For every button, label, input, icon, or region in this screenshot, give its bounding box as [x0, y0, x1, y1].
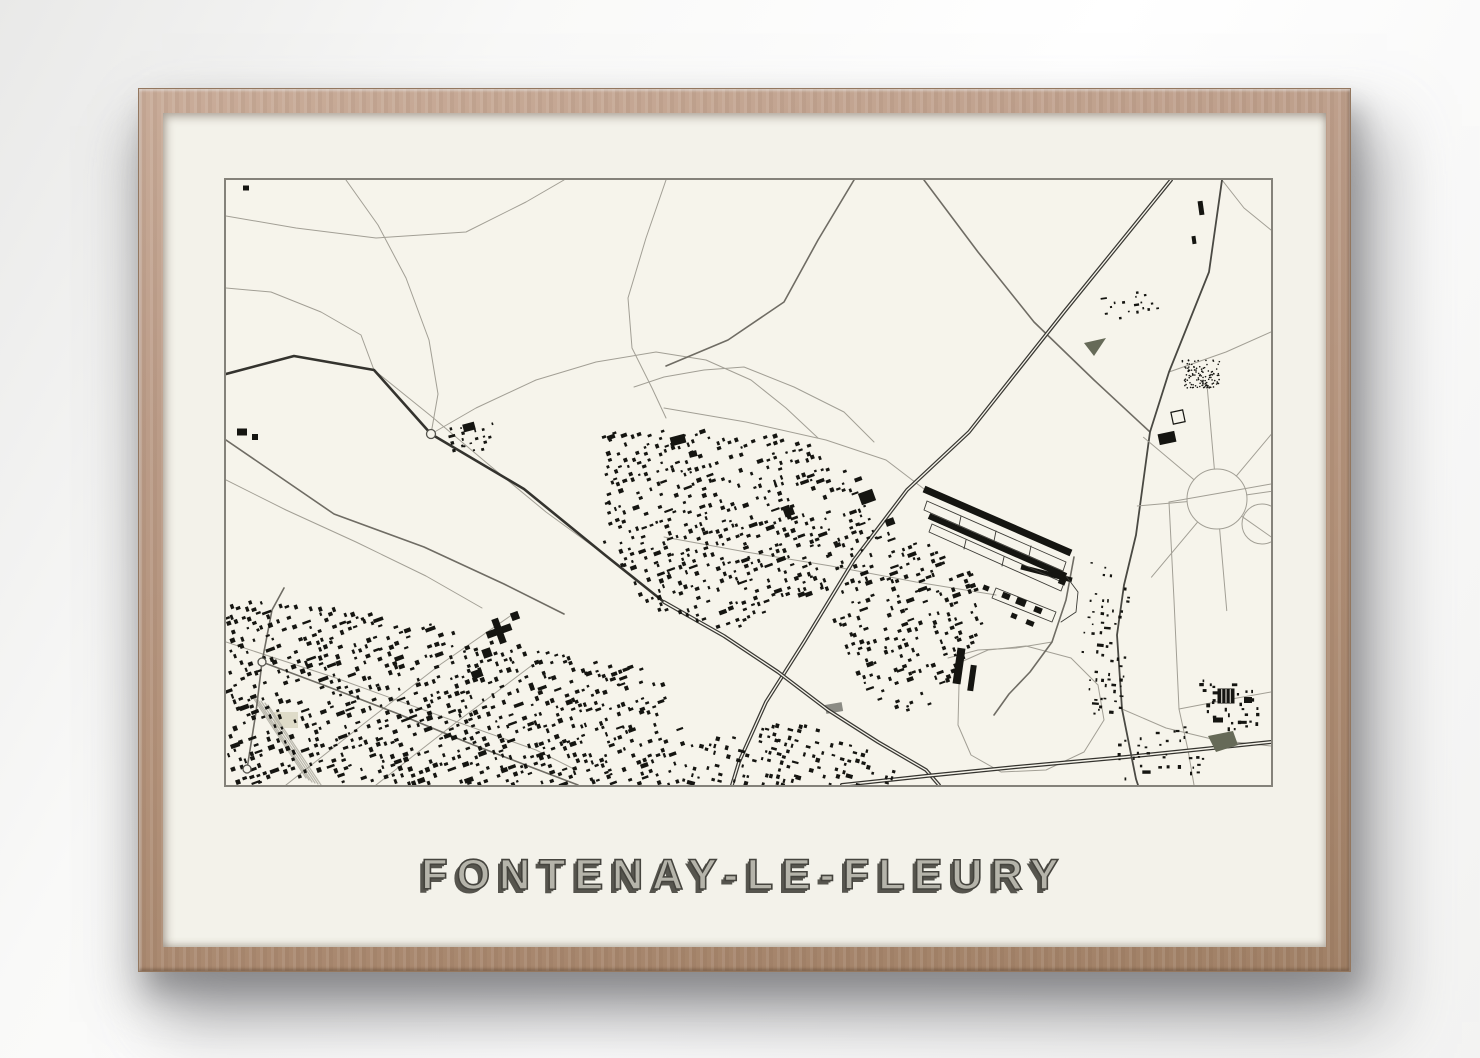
- poster-scene: FONTENAY-LE-FLEURY: [0, 0, 1480, 1058]
- map-print: [224, 178, 1273, 787]
- frame-mat: FONTENAY-LE-FLEURY: [163, 113, 1326, 947]
- poster-frame: FONTENAY-LE-FLEURY: [138, 88, 1351, 972]
- city-map-graphic: [226, 180, 1271, 785]
- poster-title: FONTENAY-LE-FLEURY: [163, 851, 1326, 900]
